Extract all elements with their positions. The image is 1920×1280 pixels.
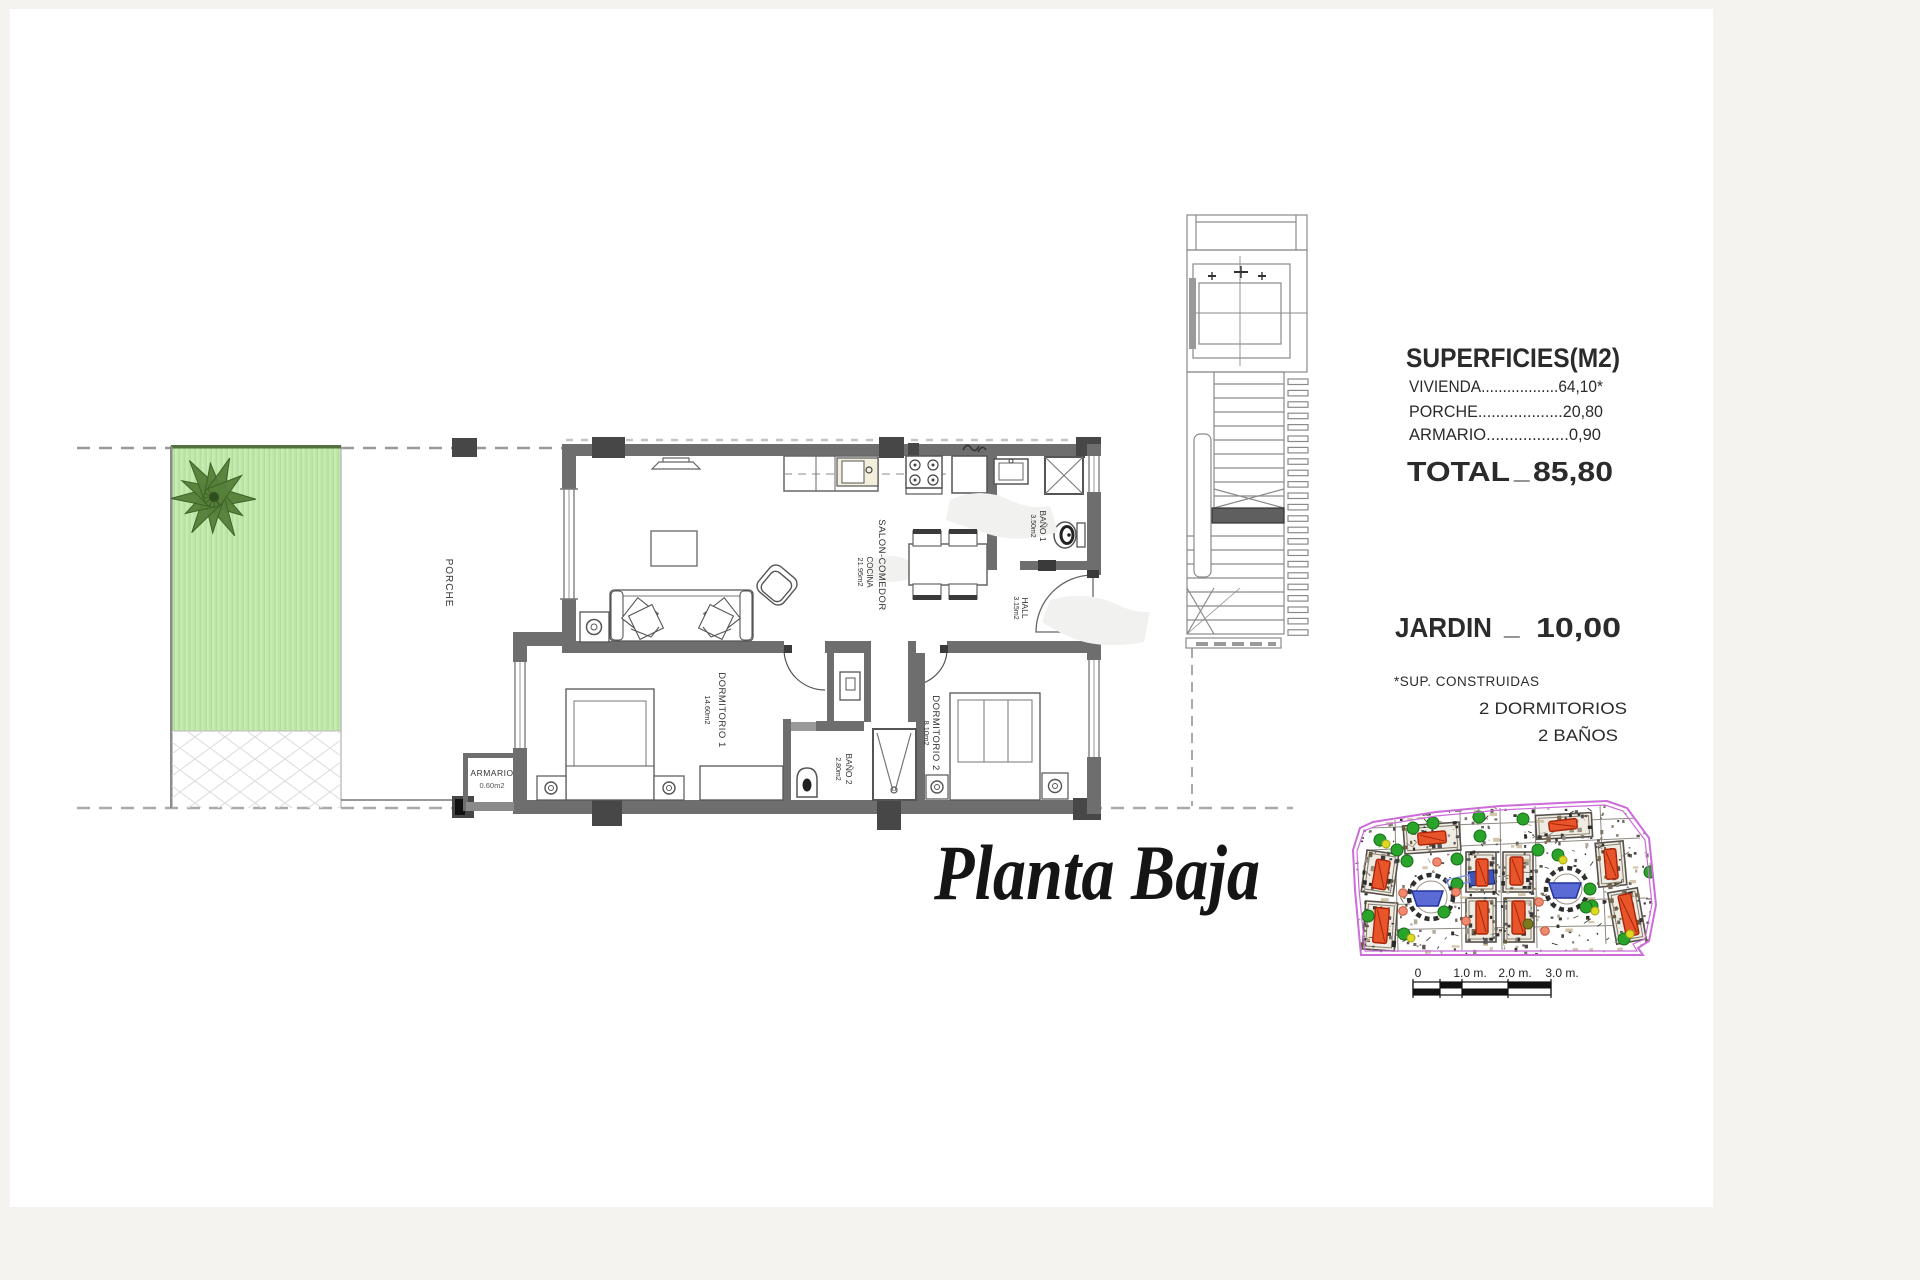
svg-text:BAÑO 1: BAÑO 1 (1038, 510, 1048, 541)
svg-text:ARMARIO: ARMARIO (470, 768, 513, 778)
svg-text:10,00: 10,00 (1536, 612, 1621, 643)
svg-text:0.60m2: 0.60m2 (479, 781, 504, 790)
svg-text:2.80m2: 2.80m2 (834, 757, 841, 780)
svg-text:JARDIN: JARDIN (1395, 612, 1492, 643)
svg-text:85,80: 85,80 (1533, 456, 1613, 487)
svg-text:COCINA: COCINA (865, 556, 874, 588)
svg-text:14.60m2: 14.60m2 (703, 695, 712, 724)
svg-text:_: _ (1503, 609, 1520, 640)
svg-text:3.0 m.: 3.0 m. (1545, 966, 1578, 980)
svg-text:*SUP. CONSTRUIDAS: *SUP. CONSTRUIDAS (1394, 674, 1540, 689)
svg-text:_: _ (1513, 453, 1530, 484)
svg-text:PORCHE...................20,80: PORCHE...................20,80 (1409, 403, 1603, 421)
svg-text:DORMITORIO 1: DORMITORIO 1 (716, 672, 727, 748)
svg-text:SALON-COMEDOR: SALON-COMEDOR (876, 519, 887, 610)
svg-text:BAÑO 2: BAÑO 2 (844, 753, 854, 784)
svg-text:TOTAL: TOTAL (1407, 456, 1510, 487)
svg-text:3.15m2: 3.15m2 (1012, 596, 1019, 619)
svg-text:2 DORMITORIOS: 2 DORMITORIOS (1479, 699, 1627, 718)
svg-text:VIVIENDA..................64,1: VIVIENDA..................64,10* (1409, 378, 1604, 396)
svg-text:0: 0 (1415, 966, 1422, 980)
svg-text:PORCHE: PORCHE (443, 559, 454, 608)
svg-text:SUPERFICIES(M2): SUPERFICIES(M2) (1406, 343, 1620, 373)
svg-text:8.10m2: 8.10m2 (922, 720, 931, 745)
svg-text:HALL: HALL (1020, 597, 1030, 619)
svg-text:21.95m2: 21.95m2 (856, 557, 865, 586)
svg-text:Planta Baja: Planta Baja (933, 829, 1260, 916)
svg-text:1.0 m.: 1.0 m. (1453, 966, 1486, 980)
svg-text:2 BAÑOS: 2 BAÑOS (1538, 726, 1618, 745)
svg-text:3.50m2: 3.50m2 (1029, 514, 1036, 537)
svg-text:2.0 m.: 2.0 m. (1498, 966, 1531, 980)
svg-text:ARMARIO..................0,90: ARMARIO..................0,90 (1409, 426, 1601, 444)
